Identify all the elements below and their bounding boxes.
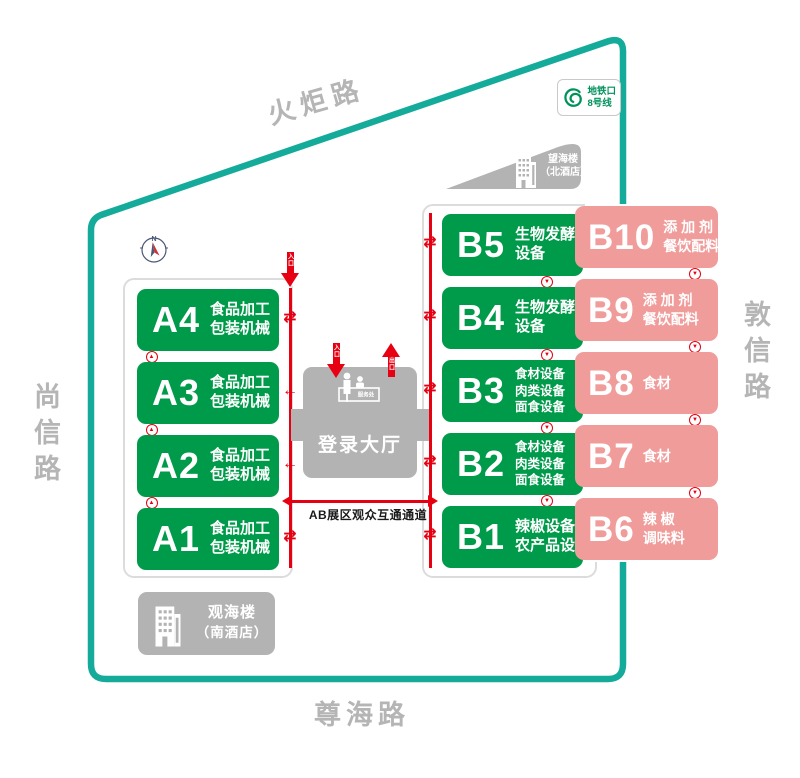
gap-arrow-down-icon: ▼ — [541, 276, 553, 288]
zone-a-entrance-arrow: 入口 — [281, 252, 299, 286]
hall-A2: A2食品加工包装机械 — [137, 435, 279, 497]
two-way-arrow-icon: ⇄ — [415, 308, 445, 324]
gap-arrow-up-icon: ▲ — [146, 351, 158, 363]
hall-A1-desc: 食品加工包装机械 — [210, 520, 270, 558]
corridor-arrow-line — [291, 500, 429, 503]
login-entrance-arrow: 入口 — [327, 343, 345, 377]
gap-arrow-down-icon: ▼ — [689, 341, 701, 353]
south-hotel-building-icon — [153, 601, 183, 647]
hall-A3: A3食品加工包装机械 — [137, 362, 279, 424]
hall-B1-id: B1 — [457, 519, 505, 555]
gap-arrow-down-icon: ▼ — [541, 422, 553, 434]
gap-arrow-up-icon: ▲ — [146, 424, 158, 436]
hall-B8: B8食材 — [575, 352, 718, 414]
hall-B9: B9添 加 剂餐饮配料 — [575, 279, 718, 341]
hall-A2-desc: 食品加工包装机械 — [210, 447, 270, 485]
left-arrow-icon: ← — [275, 456, 305, 472]
login-hall-east-arm — [415, 409, 429, 441]
compass-icon: N — [137, 232, 171, 266]
hall-B1: B1辣椒设备农产品设备 — [442, 506, 583, 568]
two-way-arrow-icon: ⇄ — [415, 235, 445, 251]
hall-B9-desc: 添 加 剂餐饮配料 — [643, 291, 699, 329]
hall-B2-desc: 食材设备肉类设备面食设备 — [515, 439, 565, 489]
login-entrance-label: 入口 — [332, 344, 341, 358]
hall-B7: B7食材 — [575, 425, 718, 487]
road-label-shangxin: 尚信路 — [26, 382, 65, 490]
hall-B8-desc: 食材 — [643, 374, 671, 393]
south-hotel: 观海楼 （南酒店） — [138, 592, 275, 655]
hall-A3-desc: 食品加工包装机械 — [210, 374, 270, 412]
hall-B3: B3食材设备肉类设备面食设备 — [442, 360, 583, 422]
two-way-arrow-icon: ⇄ — [415, 527, 445, 543]
hall-B10: B10添 加 剂餐饮配料 — [575, 206, 718, 268]
hall-B4-desc: 生物发酵设备 — [515, 299, 575, 337]
gap-arrow-up-icon: ▲ — [146, 497, 158, 509]
hall-A1-id: A1 — [152, 521, 200, 557]
gap-arrow-down-icon: ▼ — [541, 349, 553, 361]
hall-A4: A4食品加工包装机械 — [137, 289, 279, 351]
hall-B10-desc: 添 加 剂餐饮配料 — [663, 218, 719, 256]
hall-B9-id: B9 — [588, 293, 635, 328]
hall-B6: B6辣 椒调味料 — [575, 498, 718, 560]
hall-B2: B2食材设备肉类设备面食设备 — [442, 433, 583, 495]
hall-A3-id: A3 — [152, 375, 200, 411]
hall-B10-id: B10 — [588, 220, 655, 255]
hall-B4: B4生物发酵设备 — [442, 287, 583, 349]
hall-B2-id: B2 — [457, 446, 505, 482]
hall-A4-id: A4 — [152, 302, 200, 338]
hall-B5-id: B5 — [457, 227, 505, 263]
two-way-arrow-icon: ⇄ — [415, 454, 445, 470]
login-hall-label: 登录大厅 — [303, 430, 417, 457]
hall-B3-desc: 食材设备肉类设备面食设备 — [515, 366, 565, 416]
gap-arrow-down-icon: ▼ — [689, 268, 701, 280]
gap-arrow-down-icon: ▼ — [689, 487, 701, 499]
service-desk-label: 服务处 — [358, 391, 375, 399]
two-way-arrow-icon: ⇄ — [275, 529, 305, 545]
gap-arrow-down-icon: ▼ — [689, 414, 701, 426]
login-exit-arrow: 出口 — [382, 343, 400, 377]
metro-exit-badge: 地铁口 8号线 — [557, 79, 621, 116]
zone-a-entrance-label: 入口 — [286, 253, 295, 267]
hall-B6-id: B6 — [588, 512, 635, 547]
login-hall: 服务处 登录大厅 — [303, 367, 417, 478]
metro-logo-icon — [562, 86, 583, 109]
hall-B7-id: B7 — [588, 439, 635, 474]
metro-station-label: 地铁口 — [587, 86, 616, 97]
compass-north-label: N — [151, 236, 156, 243]
metro-line-label: 8号线 — [587, 98, 616, 109]
expo-venue-map: 火炬路 尚信路 敦信路 尊海路 地铁口 8号线 望海楼 （北酒店） — [0, 0, 800, 778]
hall-B7-desc: 食材 — [643, 447, 671, 466]
gap-arrow-down-icon: ▼ — [541, 495, 553, 507]
south-hotel-label: 观海楼 （南酒店） — [192, 603, 272, 643]
hall-B3-id: B3 — [457, 373, 505, 409]
hall-B5: B5生物发酵设备 — [442, 214, 583, 276]
two-way-arrow-icon: ⇄ — [275, 310, 305, 326]
north-hotel-building-icon — [514, 152, 538, 188]
road-label-dunxin: 敦信路 — [736, 300, 775, 408]
hall-A1: A1食品加工包装机械 — [137, 508, 279, 570]
hall-B4-id: B4 — [457, 300, 505, 336]
login-exit-label: 出口 — [387, 357, 396, 371]
hall-A4-desc: 食品加工包装机械 — [210, 301, 270, 339]
left-arrow-icon: ← — [275, 383, 305, 399]
corridor-label: AB展区观众互通通道 — [299, 506, 437, 523]
two-way-arrow-icon: ⇄ — [415, 381, 445, 397]
hall-B6-desc: 辣 椒调味料 — [643, 510, 685, 548]
hall-B8-id: B8 — [588, 366, 635, 401]
hall-A2-id: A2 — [152, 448, 200, 484]
north-hotel-label: 望海楼 （北酒店） — [540, 153, 586, 179]
hall-B5-desc: 生物发酵设备 — [515, 226, 575, 264]
road-label-zunhai: 尊海路 — [314, 693, 410, 732]
